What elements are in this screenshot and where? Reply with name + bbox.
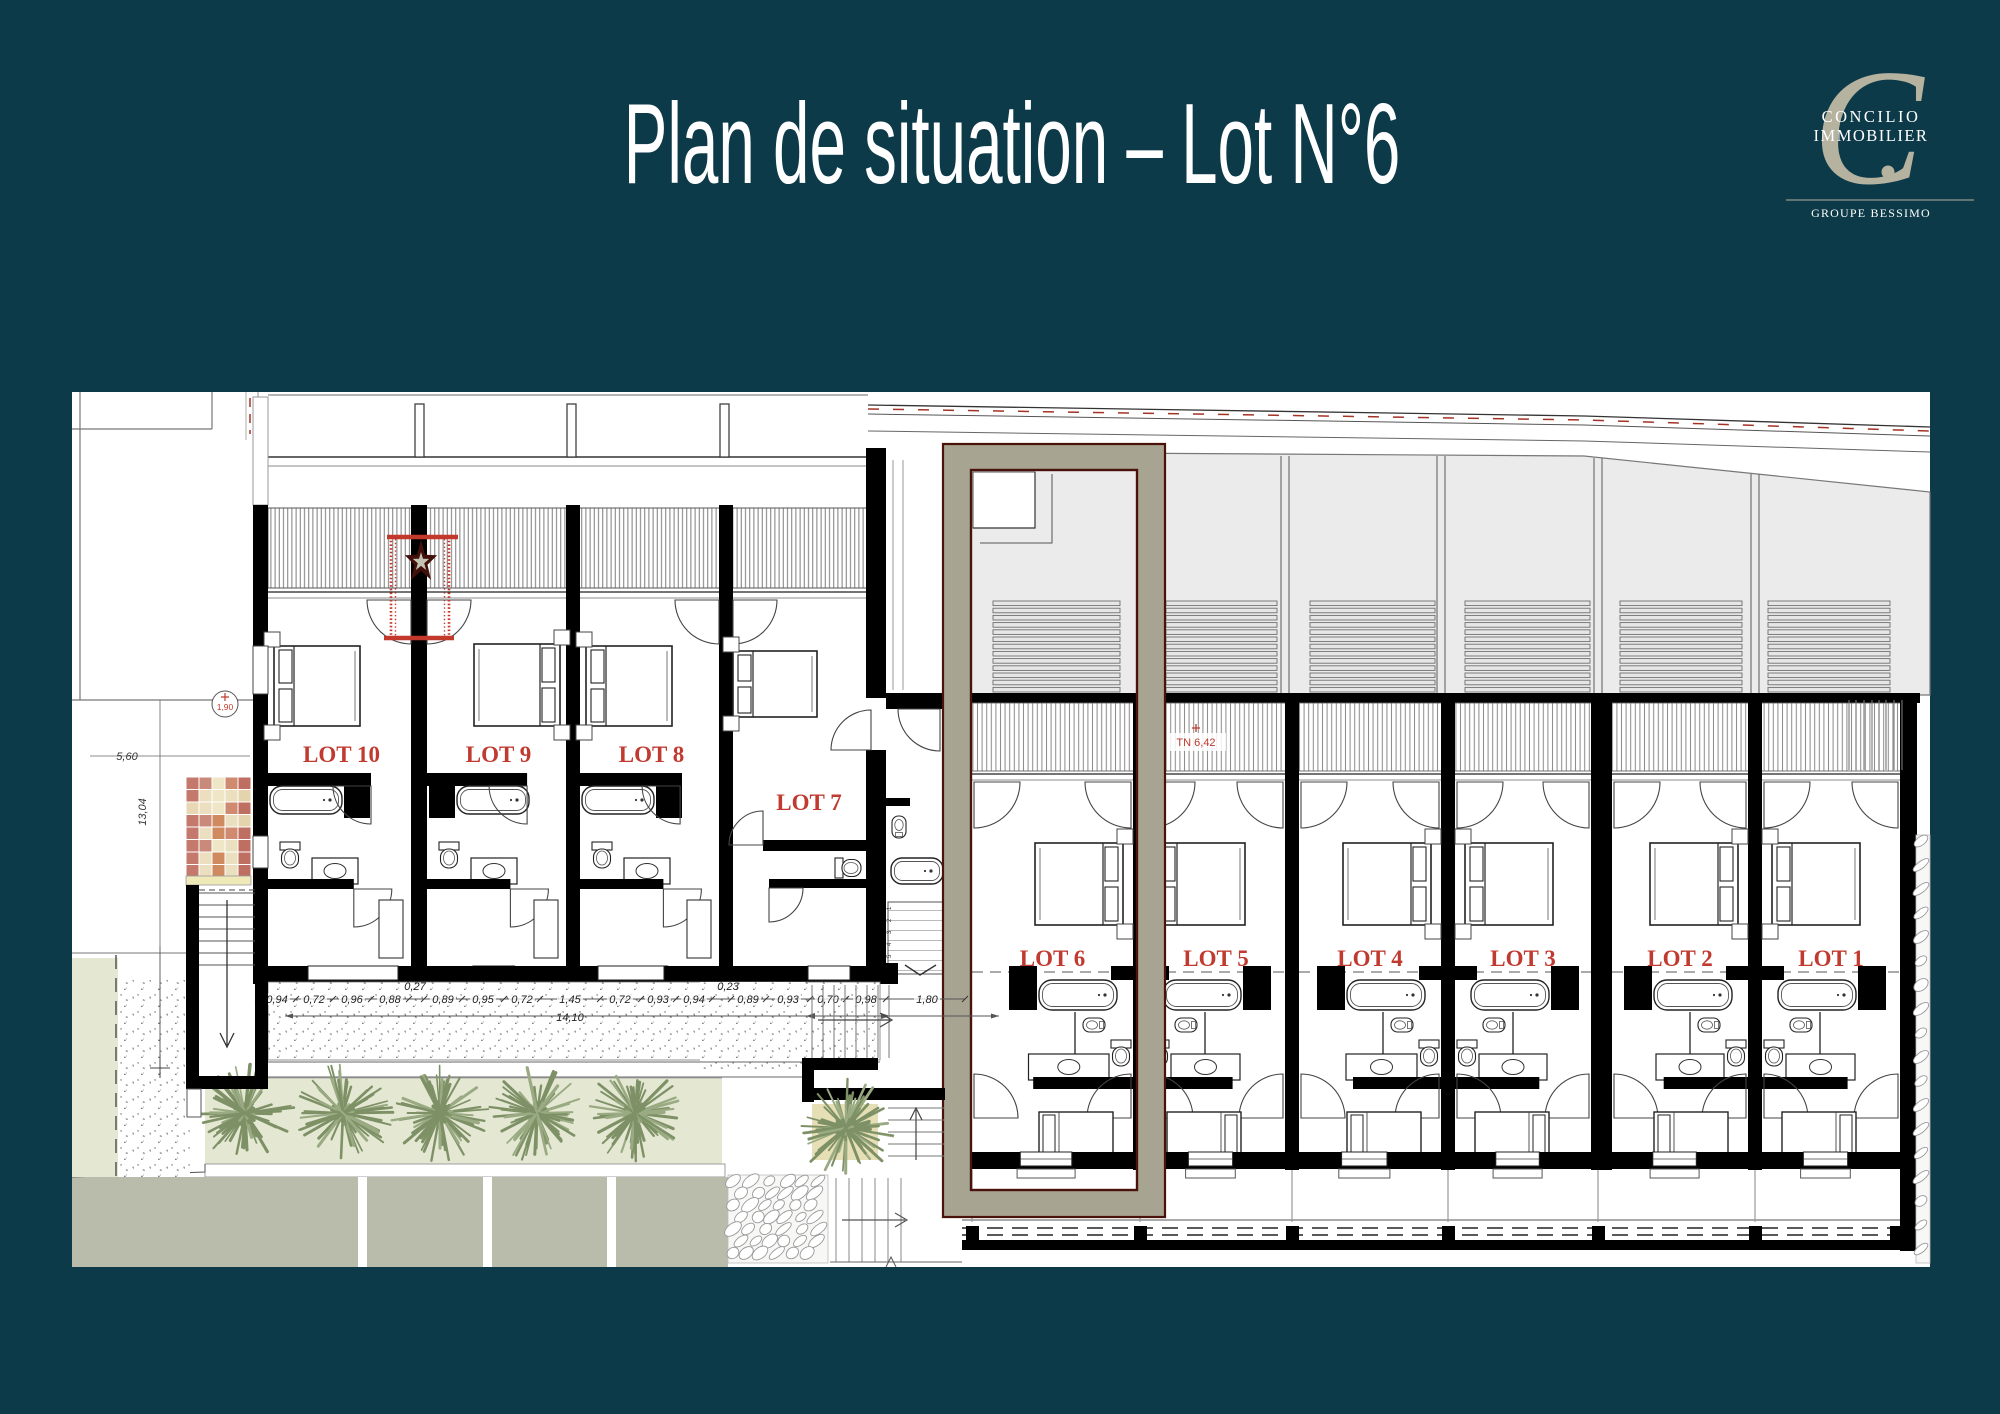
svg-text:0,96: 0,96: [341, 994, 363, 1006]
svg-text:0,89: 0,89: [737, 994, 758, 1006]
svg-text:14,10: 14,10: [556, 1012, 584, 1024]
svg-text:0,94: 0,94: [266, 994, 287, 1006]
svg-text:0,93: 0,93: [647, 994, 669, 1006]
svg-text:LOT 10: LOT 10: [303, 742, 380, 767]
svg-text:LOT 4: LOT 4: [1337, 946, 1403, 971]
svg-text:LOT 7: LOT 7: [776, 790, 841, 815]
svg-text:1,80: 1,80: [916, 994, 938, 1006]
svg-text:LOT 1: LOT 1: [1798, 946, 1863, 971]
svg-text:0,72: 0,72: [303, 994, 324, 1006]
svg-text:0,72: 0,72: [609, 994, 630, 1006]
svg-text:0,98: 0,98: [855, 994, 877, 1006]
svg-text:Plan de situation – Lot N°6: Plan de situation – Lot N°6: [624, 80, 1401, 208]
svg-text:GROUPE BESSIMO: GROUPE BESSIMO: [1811, 206, 1931, 220]
svg-text:0,23: 0,23: [717, 981, 739, 993]
svg-text:0,27: 0,27: [404, 981, 426, 993]
svg-text:IMMOBILIER: IMMOBILIER: [1814, 126, 1929, 145]
svg-text:1,90: 1,90: [217, 702, 234, 712]
svg-text:0,72: 0,72: [511, 994, 532, 1006]
svg-text:5,60: 5,60: [116, 751, 138, 763]
svg-text:LOT 8: LOT 8: [619, 742, 684, 767]
svg-text:LOT 2: LOT 2: [1647, 946, 1712, 971]
svg-text:LOT 9: LOT 9: [466, 742, 531, 767]
svg-text:LOT 5: LOT 5: [1183, 946, 1248, 971]
svg-text:CONCILIO: CONCILIO: [1822, 107, 1921, 126]
svg-text:0,70: 0,70: [817, 994, 839, 1006]
svg-text:0,93: 0,93: [777, 994, 799, 1006]
svg-text:0,88: 0,88: [379, 994, 401, 1006]
svg-text:1,45: 1,45: [559, 994, 581, 1006]
svg-text:0,95: 0,95: [472, 994, 494, 1006]
svg-text:LOT 3: LOT 3: [1490, 946, 1555, 971]
svg-text:13,04: 13,04: [137, 798, 149, 826]
svg-text:0,94: 0,94: [683, 994, 704, 1006]
svg-text:0,89: 0,89: [432, 994, 453, 1006]
svg-text:TN 6,42: TN 6,42: [1176, 737, 1215, 749]
